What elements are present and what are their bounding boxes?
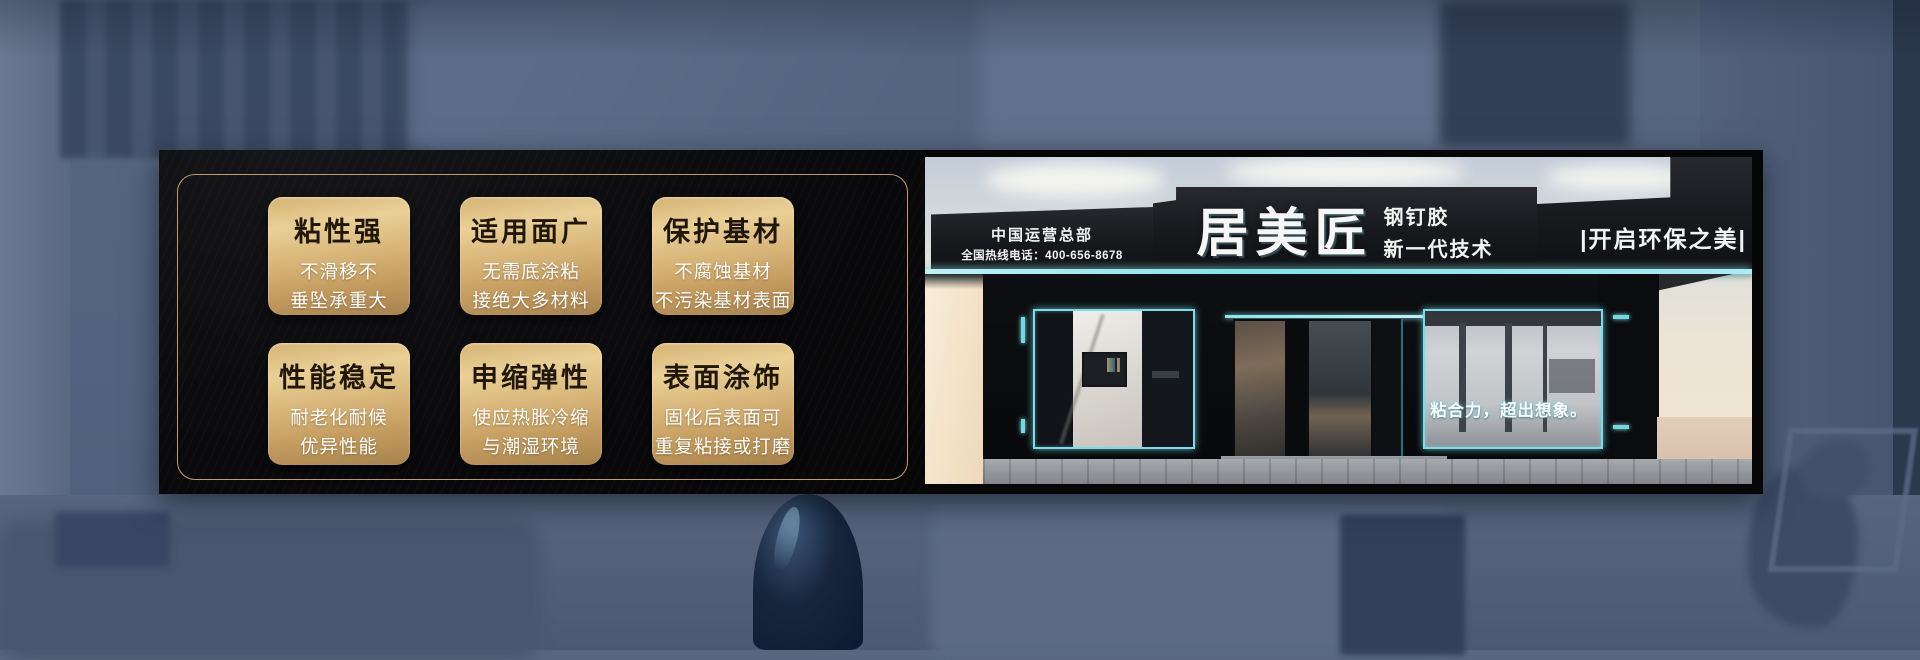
- feature-card: 申缩弹性 使应热胀冷缩 与潮湿环境: [460, 343, 602, 465]
- cloud: [985, 163, 1165, 197]
- feature-card: 保护基材 不腐蚀基材 不污染基材表面: [652, 197, 794, 315]
- feature-title: 性能稳定: [268, 356, 410, 395]
- brand-subtitle: 钢钉胶 新一代技术: [1384, 201, 1494, 262]
- cloud: [1225, 157, 1465, 187]
- background-picture-frame: [1768, 428, 1918, 572]
- right-pillar: [1599, 274, 1659, 474]
- door-mullion: [1287, 319, 1307, 459]
- brand-name: 居美匠: [1196, 191, 1373, 266]
- feature-card: 粘性强 不滑移不 垂坠承重大: [268, 197, 410, 315]
- feature-detail: 优异性能: [268, 433, 410, 459]
- feature-card: 性能稳定 耐老化耐候 优异性能: [268, 343, 410, 465]
- feature-detail: 接绝大多材料: [460, 287, 602, 313]
- feature-detail: 不污染基材表面: [652, 287, 794, 313]
- feature-detail: 无需底涂粘: [460, 258, 602, 284]
- feature-title: 粘性强: [268, 210, 410, 249]
- door-neon-trim: [1225, 315, 1437, 318]
- feature-card: 适用面广 无需底涂粘 接绝大多材料: [460, 197, 602, 315]
- feature-detail: 不腐蚀基材: [652, 258, 794, 284]
- feature-detail: 耐老化耐候: [268, 404, 410, 430]
- feature-detail: 与潮湿环境: [460, 433, 602, 459]
- feature-panel: 粘性强 不滑移不 垂坠承重大 适用面广 无需底涂粘 接绝大多材料 保护基材 不腐…: [159, 150, 925, 494]
- sidewalk-pavement: [983, 459, 1752, 484]
- window-interior-shelf: [1142, 311, 1193, 447]
- neon-accent: [1021, 419, 1025, 433]
- product-label: 钢钉胶: [1384, 201, 1494, 230]
- left-display-window: [1033, 309, 1195, 449]
- feature-title: 申缩弹性: [460, 356, 602, 395]
- feature-title: 保护基材: [652, 210, 794, 249]
- window-shelf-silhouette: [1549, 359, 1595, 393]
- background-light-area: [980, 0, 1450, 150]
- background-slat-partition: [60, 0, 430, 158]
- background-cabinet-silhouette: [1340, 515, 1465, 655]
- feature-title: 适用面广: [460, 210, 602, 249]
- entrance-glass-door: [1307, 319, 1373, 463]
- hotline-label: 全国热线电话：400-656-8678: [931, 247, 1153, 263]
- background-blurred-wall: [410, 0, 1010, 150]
- feature-card: 表面涂饰 固化后表面可 重复粘接或打磨: [652, 343, 794, 465]
- neon-accent: [1021, 317, 1025, 343]
- feature-detail: 固化后表面可: [652, 404, 794, 430]
- signboard-center-section: 居美匠 钢钉胶 新一代技术: [1153, 187, 1537, 269]
- feature-card-grid: 粘性强 不滑移不 垂坠承重大 适用面广 无需底涂粘 接绝大多材料 保护基材 不腐…: [268, 197, 794, 465]
- feature-title: 表面涂饰: [652, 356, 794, 395]
- background-dark-structure: [1440, 0, 1630, 145]
- signboard-left-section: 中国运营总部 全国热线电话：400-656-8678: [931, 207, 1153, 269]
- feature-detail: 垂坠承重大: [268, 287, 410, 313]
- storefront-photo: 中国运营总部 全国热线电话：400-656-8678 居美匠 钢钉胶 新一代技术…: [925, 157, 1752, 484]
- background-table-silhouette: [55, 512, 170, 567]
- neon-accent: [1613, 425, 1629, 429]
- feature-detail: 不滑移不: [268, 258, 410, 284]
- door-side-panel: [1373, 319, 1403, 459]
- right-display-window: 粘合力，超出想象。: [1423, 309, 1603, 449]
- window-slogan: 粘合力，超出想象。: [1430, 397, 1588, 421]
- sunlit-side-wall: [925, 270, 983, 484]
- tech-label: 新一代技术: [1384, 233, 1494, 262]
- eco-slogan: |开启环保之美|: [1580, 220, 1747, 254]
- hq-label: 中国运营总部: [931, 224, 1153, 245]
- window-ceiling-band: [1425, 311, 1601, 326]
- promo-banner: 粘性强 不滑移不 垂坠承重大 适用面广 无需底涂粘 接绝大多材料 保护基材 不腐…: [159, 150, 1763, 494]
- feature-detail: 重复粘接或打磨: [652, 433, 794, 459]
- feature-detail: 使应热胀冷缩: [460, 404, 602, 430]
- product-display-board: [1082, 352, 1126, 387]
- door-glass-panel: [1233, 319, 1287, 463]
- neon-accent: [1613, 315, 1629, 319]
